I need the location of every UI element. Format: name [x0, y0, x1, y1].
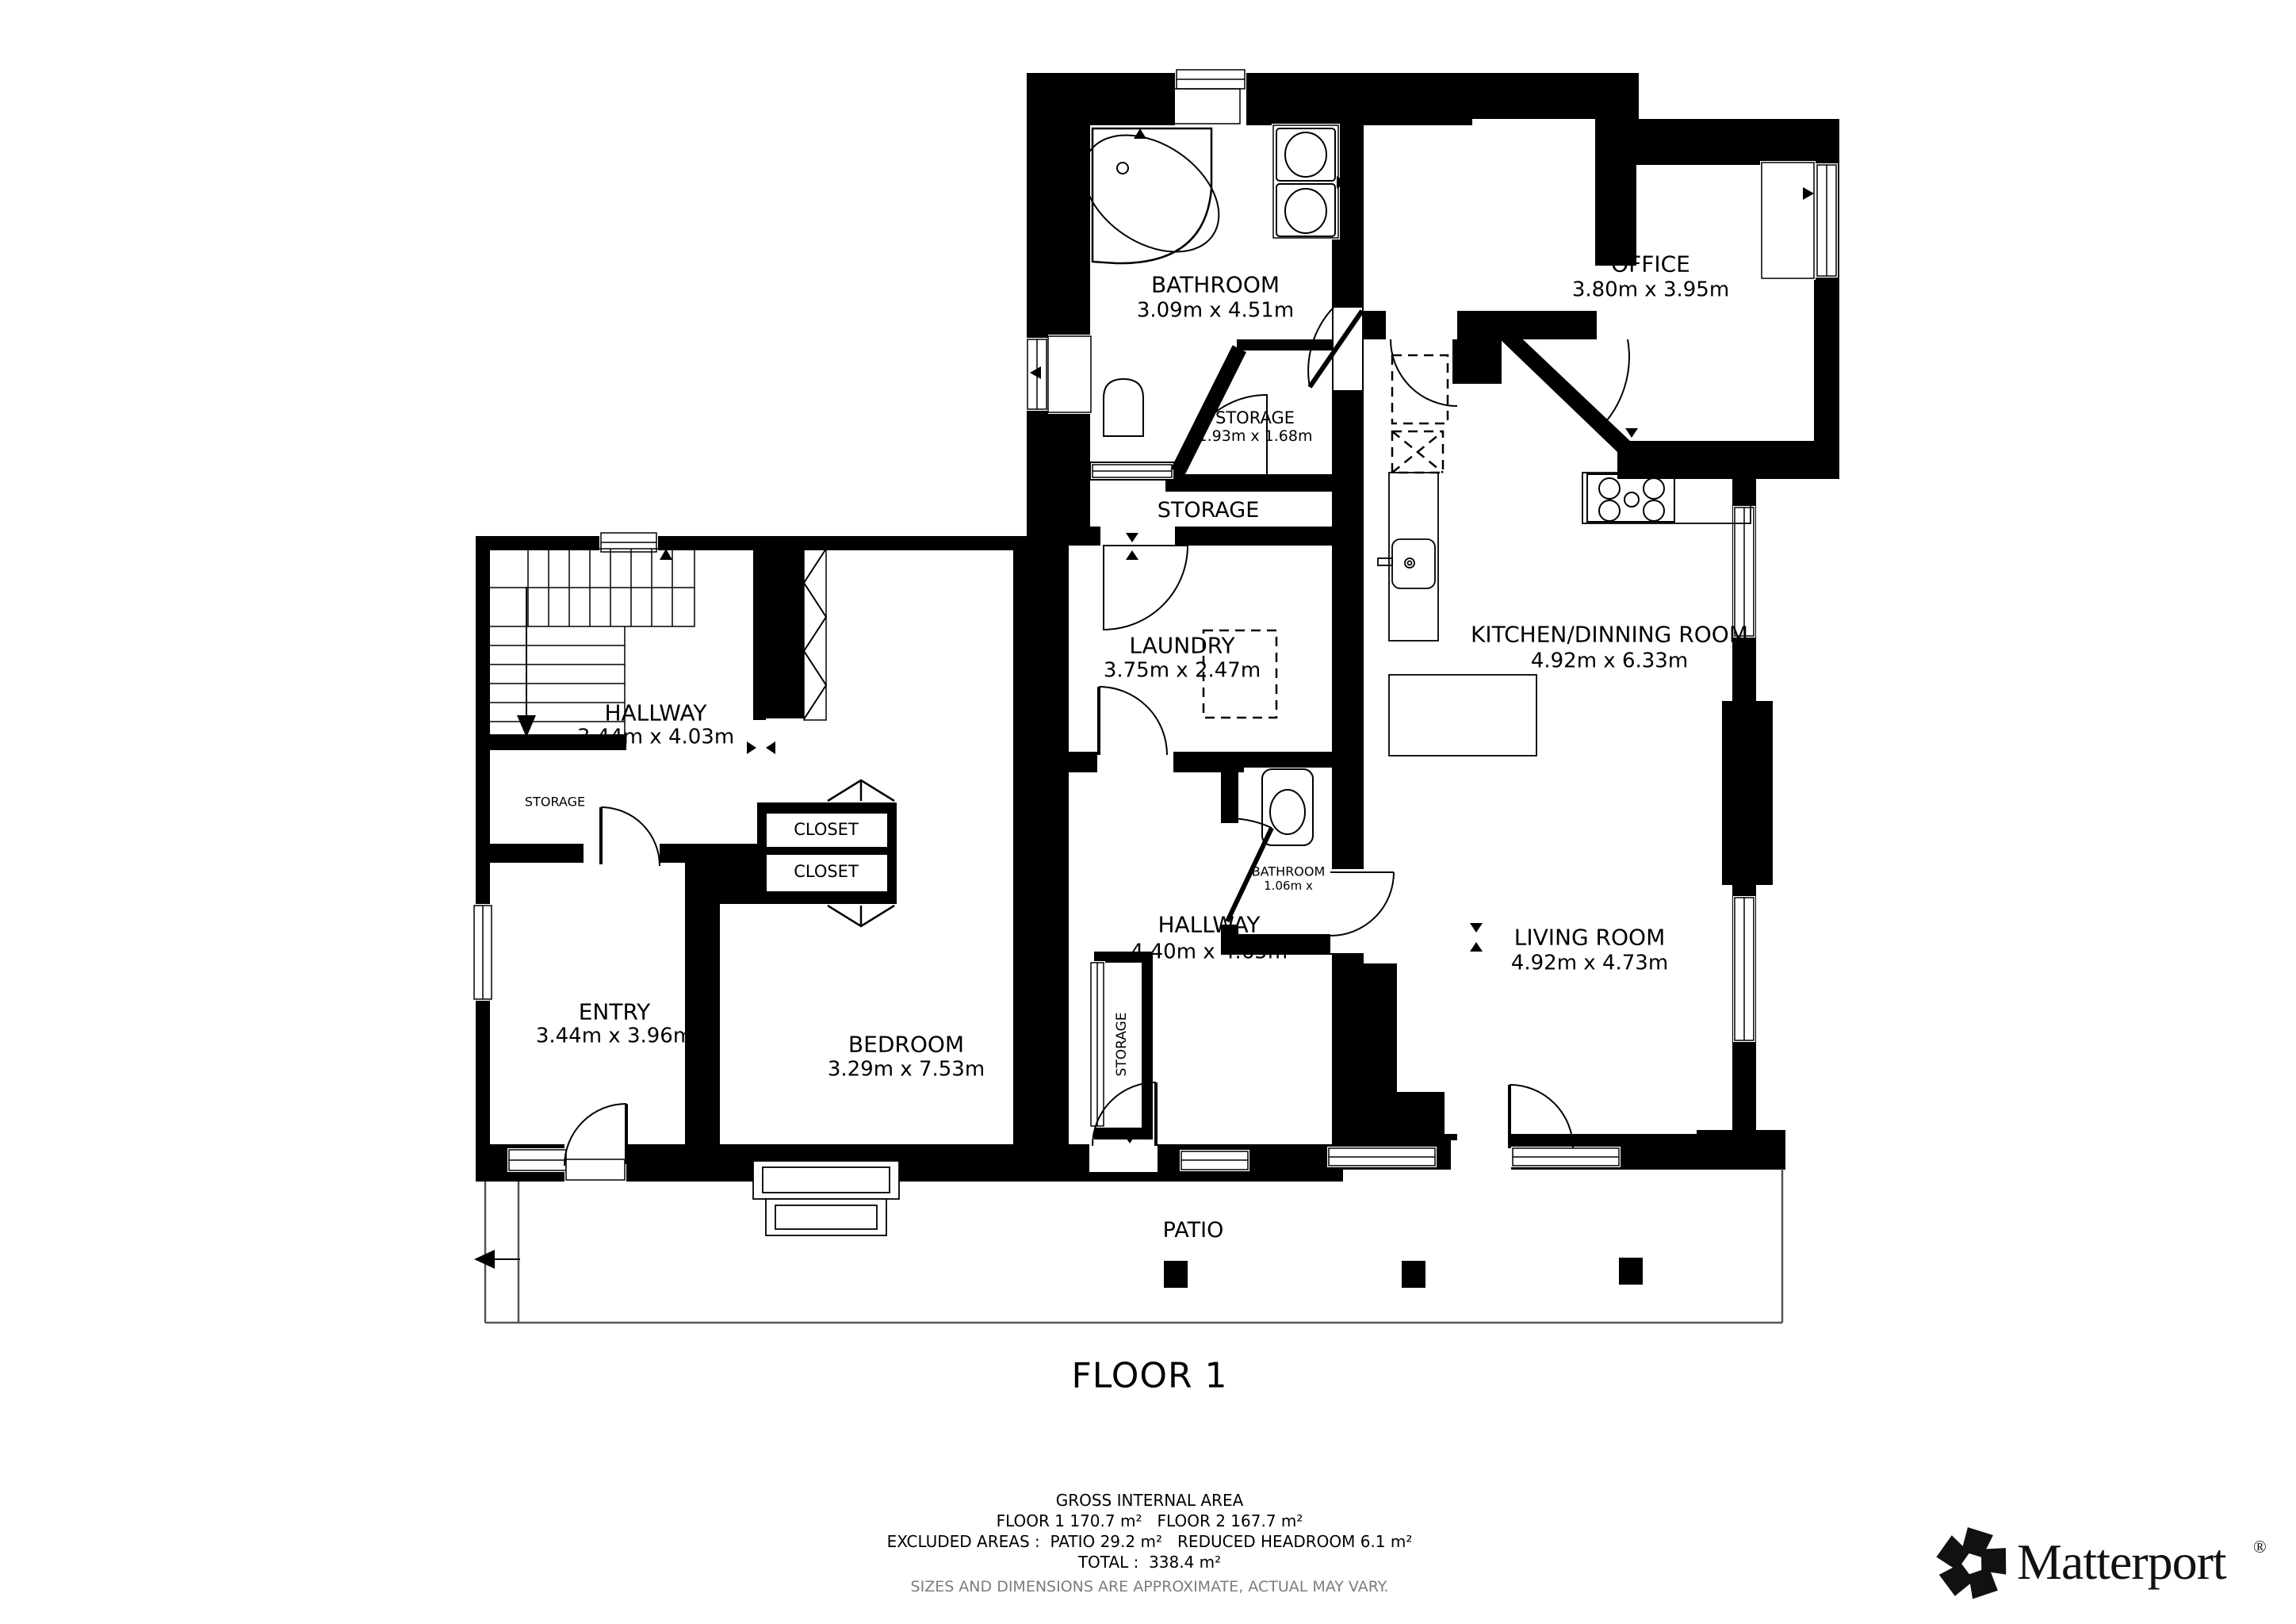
room-label-closet-1: CLOSET	[794, 821, 859, 838]
room-label-living: LIVING ROOM	[1514, 925, 1666, 948]
room-label-laundry: LAUNDRY	[1129, 634, 1234, 657]
door-threshold	[566, 1159, 625, 1180]
footer-floor-areas: FLOOR 1 170.7 m² FLOOR 2 167.7 m²	[997, 1511, 1303, 1530]
room-label-office: OFFICE	[1611, 252, 1690, 275]
room-label-patio: PATIO	[1163, 1220, 1224, 1242]
patio-steps	[753, 1161, 899, 1235]
room-label-storage-corridor: STORAGE	[1158, 500, 1260, 522]
room-dims-laundry: 3.75m x 2.47m	[1104, 660, 1261, 681]
sink-icon	[1392, 539, 1435, 588]
room-label-bedroom: BEDROOM	[848, 1032, 964, 1055]
wardrobe-icon	[804, 549, 826, 720]
room-label-hallway-center: HALLWAY	[1158, 913, 1260, 936]
floor-title: FLOOR 1	[1071, 1356, 1227, 1396]
room-dims-bedroom: 3.29m x 7.53m	[828, 1059, 985, 1080]
patio-outline	[485, 1169, 1782, 1323]
room-dims-entry: 3.44m x 3.96m	[536, 1025, 693, 1047]
registered-mark: ®	[2253, 1537, 2267, 1557]
room-dims-storage-top: 1.93m x 1.68m	[1198, 429, 1313, 445]
office-diagonal-wall	[1497, 327, 1630, 452]
matterport-logo: Matterport ®	[1934, 1522, 2283, 1610]
room-label-storage-top: STORAGE	[1215, 409, 1295, 427]
footer-excluded-areas: EXCLUDED AREAS : PATIO 29.2 m² REDUCED H…	[887, 1532, 1413, 1551]
room-dims-kitchen: 4.92m x 6.33m	[1531, 650, 1688, 672]
room-label-storage-under-stairs: STORAGE	[525, 796, 585, 810]
stove-icon	[1587, 474, 1674, 522]
room-label-entry: ENTRY	[579, 1000, 651, 1023]
room-label-bathroom-main: BATHROOM	[1151, 273, 1280, 296]
matterport-mark-icon	[1934, 1522, 2014, 1605]
room-label-hallway-left: HALLWAY	[604, 701, 706, 724]
room-label-closet-2: CLOSET	[794, 863, 859, 880]
patio-exit-arrow	[474, 1250, 520, 1269]
room-dims-office: 3.80m x 3.95m	[1572, 279, 1729, 301]
floorplan-page: BATHROOM 3.09m x 4.51m STORAGE 1.93m x 1…	[0, 0, 2296, 1624]
room-dims-living: 4.92m x 4.73m	[1511, 952, 1668, 974]
room-label-bathroom-small: BATHROOM	[1252, 866, 1326, 879]
room-label-kitchen: KITCHEN/DINNING ROOM	[1471, 622, 1748, 645]
toilet-icon	[1104, 379, 1143, 436]
matterport-wordmark: Matterport	[2017, 1533, 2226, 1591]
footer-total-area: TOTAL : 338.4 m²	[1078, 1553, 1221, 1572]
room-label-storage-hall-closet: STORAGE	[1115, 1013, 1130, 1077]
room-dims-hallway-left: 3.44m x 4.03m	[577, 726, 734, 748]
kitchen-counter	[1378, 473, 1751, 756]
footer-disclaimer: SIZES AND DIMENSIONS ARE APPROXIMATE, AC…	[911, 1578, 1389, 1595]
footer-gross-area: GROSS INTERNAL AREA	[1056, 1491, 1244, 1510]
room-dims-bathroom-small: 1.06m x	[1264, 880, 1313, 893]
kitchen-island	[1389, 675, 1536, 756]
patio-pillars	[1164, 1258, 1643, 1288]
room-dims-bathroom-main: 3.09m x 4.51m	[1137, 300, 1294, 321]
room-dims-hallway-center: 4.40m x 4.65m	[1131, 941, 1288, 963]
